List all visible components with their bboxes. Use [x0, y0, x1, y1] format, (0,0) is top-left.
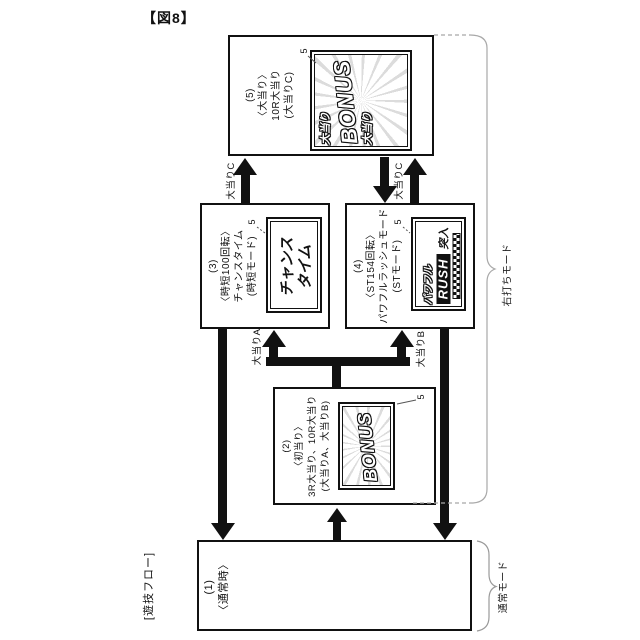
bonus-text: BONUS [353, 406, 382, 486]
normal-mode-brace [477, 541, 496, 631]
screen-background: 大当り BONUS 大当り [314, 54, 408, 147]
arrow-shaft [380, 157, 389, 187]
arrow-label-jackpot-c-right: 大当りC [391, 162, 405, 199]
chance-text: チャンス [279, 237, 296, 297]
screen-content: 大当り BONUS 大当り [317, 56, 408, 147]
lcd-screen-bonus-c: 大当り BONUS 大当り [310, 50, 412, 151]
arrow-shaft [332, 357, 341, 388]
right-hit-mode-label: 右打ちモード [499, 244, 514, 307]
lcd-screen-powerful-rush: パワフル RUSH 突入 [411, 217, 466, 311]
state-box-4-label: (4) 〈ST154回転〉 パワフルラッシュモード (STモード) [352, 207, 404, 325]
screen-content: BONUS [343, 407, 391, 486]
screen-content: チャンス タイム [273, 223, 318, 309]
figure-title: 【図8】 [142, 8, 196, 28]
screen-ref-numeral: 5 [299, 48, 309, 53]
patent-flow-diagram: 【図8】 [遊技フロー] (5) 〈大当り〉 10R大当り (大当りC) 5 大… [0, 0, 640, 640]
screen-background: チャンス タイム [270, 221, 318, 309]
state-box-1-label: (1) 〈通常時〉 [202, 545, 232, 629]
arrow-shaft [241, 172, 250, 203]
arrow-label-jackpot-c-left: 大当りC [223, 162, 237, 199]
film-strip-decoration [453, 233, 461, 299]
screen-ref-numeral: 5 [393, 219, 403, 224]
arrow-head-down [433, 523, 457, 540]
arrow-head-down [211, 523, 235, 540]
lcd-screen-chance-time: チャンス タイム [266, 217, 322, 313]
lcd-screen-bonus-ab: BONUS [338, 402, 395, 490]
rush-text: RUSH [437, 254, 451, 305]
screen-background: パワフル RUSH 突入 [415, 221, 462, 307]
state-box-5-label: (5) 〈大当り〉 10R大当り (大当りC) [244, 39, 296, 151]
screen-content: パワフル RUSH 突入 [418, 223, 463, 307]
arrow-shaft [440, 328, 449, 524]
arrow-label-jackpot-a: 大当りA [249, 329, 263, 366]
state-box-2-label: (2) 〈初当り〉 3R大当り、10R大当り (大当りA、大当りB) [280, 391, 332, 501]
flow-caption: [遊技フロー] [140, 552, 156, 620]
arrow-label-jackpot-b: 大当りB [413, 331, 427, 368]
powerful-text: パワフル [420, 265, 435, 305]
arrow-shaft [333, 520, 341, 540]
screen-ref-numeral: 5 [416, 394, 426, 399]
screen-background: BONUS [342, 406, 391, 486]
screen-ref-numeral: 5 [247, 219, 257, 224]
arrow-shaft [218, 328, 227, 524]
state-box-1-normal: (1) 〈通常時〉 [197, 540, 472, 631]
totsunyu-text: 突入 [436, 228, 452, 250]
state-box-3-label: (3) 〈時短100回転〉 チャンスタイム (時短モード) [207, 207, 259, 325]
normal-mode-label: 通常モード [495, 561, 510, 614]
arrow-head-up [390, 330, 414, 347]
arrow-head-up [262, 330, 286, 347]
arrow-shaft [410, 172, 419, 203]
time-text: タイム [297, 245, 314, 290]
